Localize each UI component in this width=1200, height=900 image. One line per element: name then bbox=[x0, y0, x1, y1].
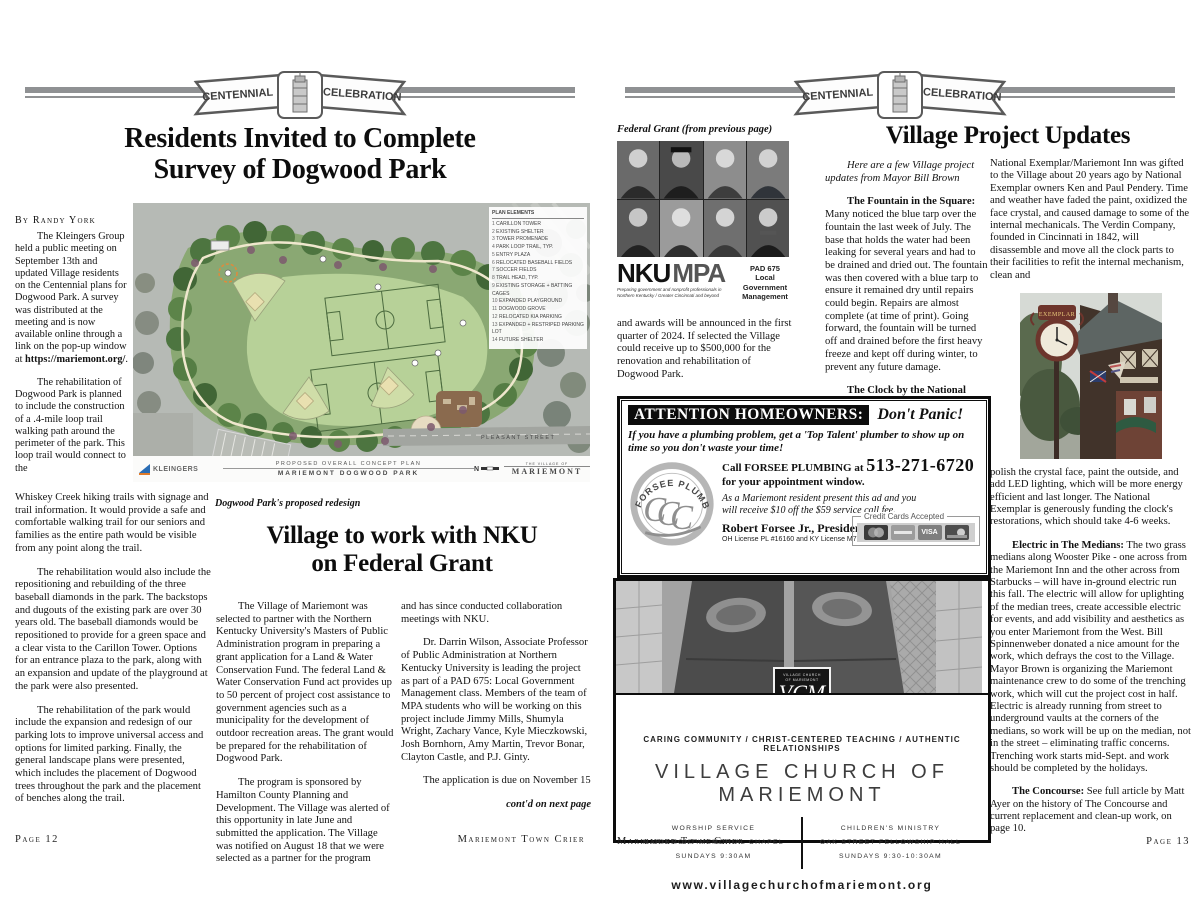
paragraph: Dr. Darrin Wilson, Associate Professor o… bbox=[401, 637, 591, 764]
north-and-scale: N bbox=[474, 466, 504, 473]
carillon-tower-icon bbox=[293, 72, 307, 112]
church-tagline: CARING COMMUNITY / CHRIST-CENTERED TEACH… bbox=[626, 735, 978, 753]
page-12: CENTENNIAL CELEBRATION Residents Invited… bbox=[0, 0, 600, 900]
continued-note: cont'd on next page bbox=[401, 799, 591, 812]
article-link-text: https://mariemont.org/ bbox=[25, 354, 125, 365]
headshot-photo bbox=[617, 141, 659, 199]
existing-shelter bbox=[211, 241, 229, 250]
forsee-plumbing-ad: ATTENTION HOMEOWNERS: Don't Panic! If yo… bbox=[617, 396, 991, 578]
kleingers-logo: KLEINGERS bbox=[133, 462, 223, 476]
continued-article-text: and awards will be announced in the firs… bbox=[617, 318, 793, 393]
paragraph: and has since conducted collaboration me… bbox=[401, 601, 591, 626]
plan-legend: PLAN ELEMENTS CARILLON TOWER EXISTING SH… bbox=[489, 207, 587, 349]
nku-wordmark: NKU bbox=[617, 258, 670, 288]
call-line: Call FORSEE PLUMBING at 513-271-6720for … bbox=[722, 456, 980, 488]
amex-icon bbox=[891, 525, 915, 540]
article-column-1-upper: The Kleingers Group held a public meetin… bbox=[15, 231, 131, 486]
paragraph: The rehabilitation would also include th… bbox=[15, 567, 211, 694]
discover-icon bbox=[945, 525, 969, 540]
article-column-3: and has since conducted collaboration me… bbox=[401, 601, 591, 812]
page-number: Page 12 bbox=[15, 834, 59, 845]
page-title: Village Project Updates bbox=[822, 122, 1194, 150]
page-13-footer: Mariemont Town Crier Page 13 bbox=[617, 836, 1190, 847]
pad-675-label: PAD 675 Local Government Management bbox=[739, 260, 791, 302]
paragraph: The rehabilitation of Dogwood Park is pl… bbox=[15, 377, 131, 475]
paragraph: The application is due on November 15 bbox=[401, 775, 591, 788]
headline-line-2: Survey of Dogwood Park bbox=[100, 155, 500, 186]
legend-list: CARILLON TOWER EXISTING SHELTER TOWER PR… bbox=[492, 221, 584, 345]
exemplar-clock-photo: EXEMPLAR bbox=[1020, 293, 1162, 459]
plan-titles: PROPOSED OVERALL CONCEPT PLAN MARIEMONT … bbox=[223, 461, 474, 477]
headshot-photo bbox=[660, 141, 702, 199]
paragraph: and awards will be announced in the firs… bbox=[617, 318, 793, 382]
paragraph: The Fountain in the Square: Many noticed… bbox=[825, 196, 988, 374]
paragraph: polish the crystal face, paint the outsi… bbox=[990, 467, 1192, 529]
headline2-line-2: on Federal Grant bbox=[212, 550, 592, 578]
legend-title: PLAN ELEMENTS bbox=[492, 210, 584, 219]
publication-title: Mariemont Town Crier bbox=[458, 834, 585, 845]
second-article-title: Village to work with NKU on Federal Gran… bbox=[212, 522, 592, 577]
publication-title: Mariemont Town Crier bbox=[617, 836, 744, 847]
centennial-ribbon: CENTENNIAL CELEBRATION bbox=[778, 70, 1022, 120]
plan-title-line1: PROPOSED OVERALL CONCEPT PLAN bbox=[223, 461, 474, 467]
paragraph: The rehabilitation of the park would inc… bbox=[15, 705, 211, 807]
paragraph: National Exemplar/Mariemont Inn was gift… bbox=[990, 158, 1192, 282]
credit-cards-label: Credit Cards Accepted bbox=[861, 512, 947, 521]
paragraph: Electric in The Medians: The two grass m… bbox=[990, 540, 1192, 775]
church-doors-photo: VILLAGE CHURCH OF MARIEMONT VCM bbox=[616, 581, 988, 695]
phone-number: 513-271-6720 bbox=[866, 455, 974, 475]
mpa-wordmark: MPA bbox=[672, 258, 725, 288]
village-of-mariemont-mark: THE VILLAGE OF MARIEMONT bbox=[504, 462, 590, 476]
paragraph: The Kleingers Group held a public meetin… bbox=[15, 231, 131, 366]
page-12-footer: Page 12 Mariemont Town Crier bbox=[15, 834, 585, 845]
paragraph: The program is sponsored by Hamilton Cou… bbox=[216, 777, 396, 866]
headshot-photo bbox=[704, 200, 746, 258]
north-arrow: N bbox=[474, 466, 479, 473]
article-column-1-lower: Whiskey Creek hiking trails with signage… bbox=[15, 492, 211, 817]
nku-mpa-logo-block: NKUMPA Preparing government and nonprofi… bbox=[617, 260, 791, 302]
headshot-photo bbox=[617, 200, 659, 258]
plan-title-line2: MARIEMONT DOGWOOD PARK bbox=[223, 468, 474, 477]
headshot-photo bbox=[747, 141, 789, 199]
ccc-monogram: CCC bbox=[643, 491, 694, 537]
scale-bar bbox=[481, 466, 501, 472]
kleingers-icon bbox=[137, 462, 151, 476]
carillon-tower-icon bbox=[893, 72, 907, 112]
byline: By Randy York bbox=[15, 215, 96, 226]
ad-header: ATTENTION HOMEOWNERS: Don't Panic! bbox=[628, 405, 980, 425]
nku-mpa-logo: NKUMPA Preparing government and nonprofi… bbox=[617, 260, 739, 299]
updates-column-2: National Exemplar/Mariemont Inn was gift… bbox=[990, 158, 1192, 847]
credit-cards-box: Credit Cards Accepted VISA bbox=[852, 516, 980, 546]
church-name: VILLAGE CHURCH OF MARIEMONT bbox=[626, 761, 978, 807]
village-church-ad: VILLAGE CHURCH OF MARIEMONT VCM CARING C… bbox=[613, 578, 991, 843]
newspaper-spread: CENTENNIAL CELEBRATION Residents Invited… bbox=[0, 0, 1200, 900]
mpa-team-photo-collage bbox=[617, 141, 789, 257]
dont-panic-text: Don't Panic! bbox=[877, 406, 963, 424]
continued-article-caption: Federal Grant (from previous page) bbox=[617, 124, 772, 135]
paragraph: The Concourse: See full article by Matt … bbox=[990, 786, 1192, 836]
plan-title-strip: KLEINGERS PROPOSED OVERALL CONCEPT PLAN … bbox=[133, 456, 590, 482]
visa-icon: VISA bbox=[918, 525, 942, 540]
paragraph: Whiskey Creek hiking trails with signage… bbox=[15, 492, 211, 556]
page-13: CENTENNIAL CELEBRATION Federal Grant (fr… bbox=[600, 0, 1200, 900]
vcm-monogram: VCM bbox=[775, 682, 829, 695]
clock-sign-text: EXEMPLAR bbox=[1039, 312, 1075, 318]
headshot-photo bbox=[747, 200, 789, 258]
kleingers-name: KLEINGERS bbox=[153, 466, 198, 473]
page-number: Page 13 bbox=[1146, 836, 1190, 847]
ad-pitch-text: If you have a plumbing problem, get a 'T… bbox=[628, 429, 980, 454]
page-title: Residents Invited to Complete Survey of … bbox=[100, 124, 500, 186]
headline-line-1: Residents Invited to Complete bbox=[100, 124, 500, 155]
mastercard-icon bbox=[864, 525, 888, 540]
attention-homeowners-banner: ATTENTION HOMEOWNERS: bbox=[628, 405, 869, 425]
nku-tagline: Preparing government and nonprofit profe… bbox=[617, 287, 739, 299]
street-label: PLEASANT STREET bbox=[481, 435, 555, 441]
map-caption: Dogwood Park's proposed redesign bbox=[215, 498, 360, 509]
headshot-photo bbox=[704, 141, 746, 199]
park-concept-plan-figure: PLEASANT STREET PLAN ELEMENTS CARILLON T… bbox=[133, 203, 590, 482]
headshot-photo bbox=[660, 200, 702, 258]
paragraph: The Village of Mariemont was selected to… bbox=[216, 601, 396, 766]
church-website: www.villagechurchofmariemont.org bbox=[626, 878, 978, 892]
headline2-line-1: Village to work with NKU bbox=[212, 522, 592, 550]
forsee-plumbing-logo: FORSEE PLUMBING CCC bbox=[628, 456, 716, 548]
updates-column-1: Here are a few Village project updates f… bbox=[825, 160, 988, 434]
centennial-ribbon: CENTENNIAL CELEBRATION bbox=[178, 70, 422, 120]
vcm-shield-logo: VILLAGE CHURCH OF MARIEMONT VCM bbox=[773, 667, 831, 695]
intro-paragraph: Here are a few Village project updates f… bbox=[825, 160, 988, 185]
